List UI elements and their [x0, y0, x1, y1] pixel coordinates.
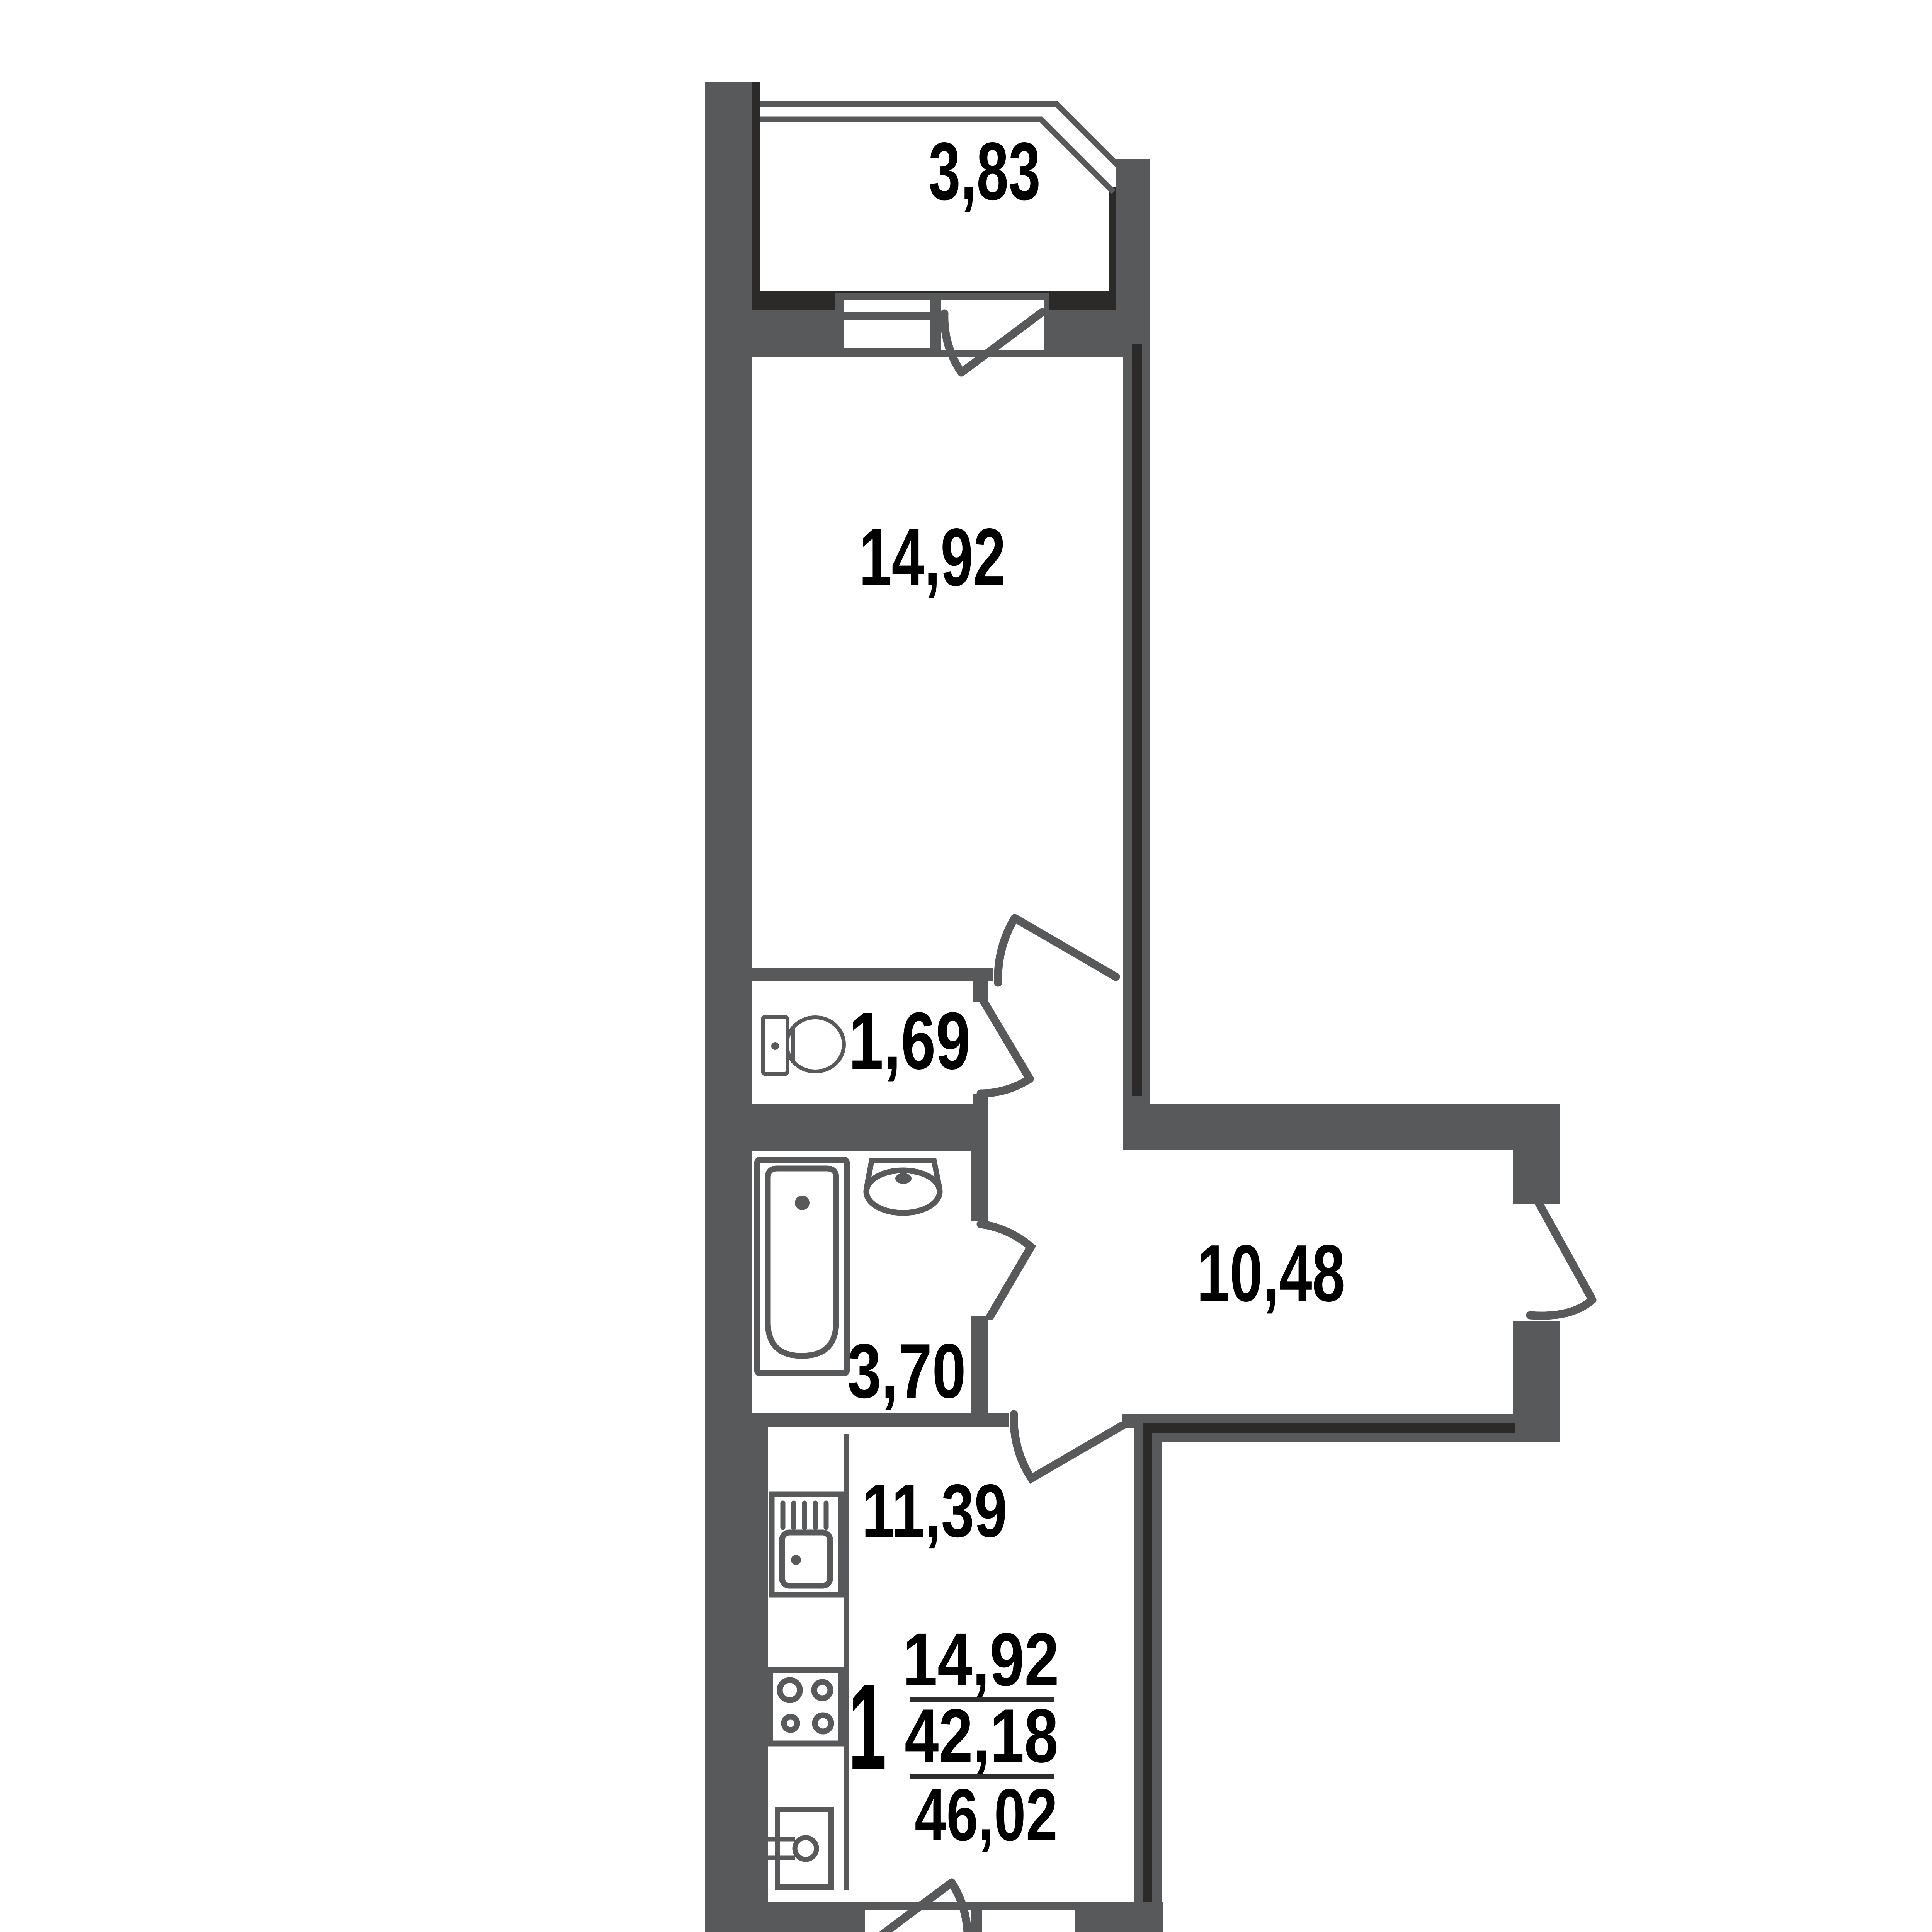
- svg-text:14,92: 14,92: [859, 511, 1006, 603]
- svg-text:14,92: 14,92: [903, 1617, 1059, 1702]
- svg-text:1: 1: [848, 1659, 886, 1795]
- svg-text:3,83: 3,83: [929, 125, 1041, 217]
- svg-text:10,48: 10,48: [1197, 1228, 1345, 1318]
- svg-text:42,18: 42,18: [905, 1693, 1058, 1778]
- svg-text:11,39: 11,39: [862, 1469, 1007, 1553]
- svg-text:46,02: 46,02: [915, 1773, 1058, 1856]
- svg-text:3,70: 3,70: [847, 1328, 966, 1414]
- svg-text:1,69: 1,69: [849, 995, 971, 1086]
